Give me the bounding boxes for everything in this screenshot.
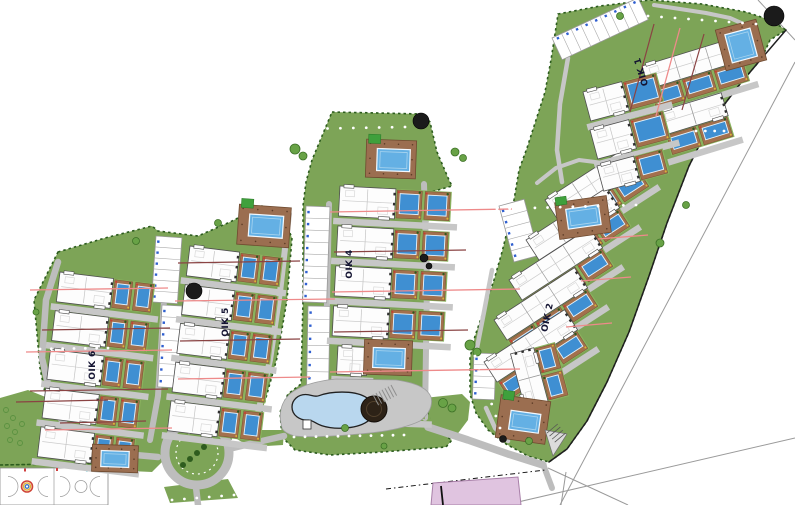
boundary-line-3 <box>548 468 628 505</box>
pool-west-amenity <box>237 198 292 248</box>
tree <box>656 239 664 247</box>
dark-tree <box>500 436 507 443</box>
plot-pink <box>431 477 521 505</box>
tree <box>526 438 533 445</box>
label-oik-4: OIK 4 <box>345 249 355 278</box>
tree <box>290 144 300 154</box>
lagoon-kiosk <box>303 420 311 429</box>
site-plan-svg: OIK 6OIK 5OIK 4OIK 2OIK 1 <box>0 0 795 505</box>
site-plan-canvas: OIK 6OIK 5OIK 4OIK 2OIK 1 <box>0 0 795 505</box>
dark-tree <box>186 283 202 299</box>
boundary-line-5 <box>561 472 566 505</box>
tree <box>133 238 140 245</box>
tree <box>473 348 481 356</box>
tree <box>381 443 387 449</box>
dark-tree <box>426 263 432 269</box>
tree <box>465 340 475 350</box>
pool-mid-north <box>365 134 416 179</box>
road-roundabout-south <box>196 487 198 505</box>
tree <box>342 425 349 432</box>
parking-west-1 <box>151 236 182 304</box>
road-south-exit <box>543 464 552 488</box>
dark-tree <box>413 113 429 129</box>
label-oik-5: OIK 5 <box>221 307 231 336</box>
parking-mid-1 <box>303 206 330 303</box>
pool-southwest <box>92 444 139 473</box>
tree <box>448 404 456 412</box>
dark-tree <box>420 254 428 262</box>
tree <box>617 13 624 20</box>
tree <box>683 202 690 209</box>
tree <box>215 220 222 227</box>
sports-courts <box>0 468 108 505</box>
label-oik-6: OIK 6 <box>88 350 98 379</box>
tree <box>299 152 307 160</box>
tree <box>33 309 39 315</box>
tree <box>460 155 467 162</box>
tree <box>451 148 459 156</box>
tree <box>439 399 448 408</box>
dark-tree <box>764 6 784 26</box>
